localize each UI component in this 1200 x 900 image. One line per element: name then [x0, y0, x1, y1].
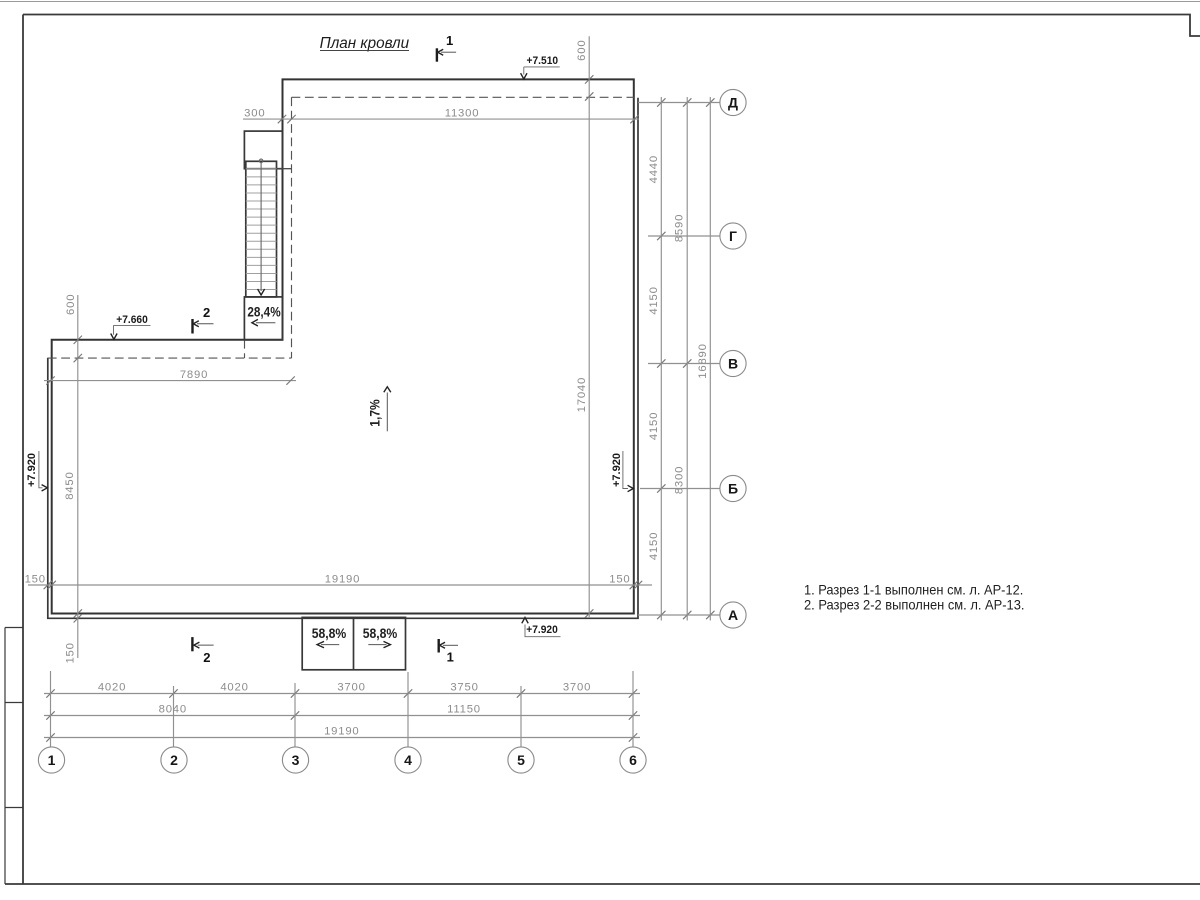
svg-text:Б: Б [728, 481, 738, 497]
svg-text:8300: 8300 [674, 466, 686, 494]
svg-text:8040: 8040 [159, 704, 187, 716]
svg-text:17040: 17040 [576, 377, 588, 412]
svg-text:План кровли: План кровли [320, 35, 410, 52]
svg-text:Д: Д [728, 95, 738, 111]
svg-text:+7.510: +7.510 [527, 55, 559, 67]
svg-text:4: 4 [404, 752, 412, 768]
svg-text:4150: 4150 [648, 286, 660, 314]
svg-text:+7.920: +7.920 [26, 453, 38, 487]
svg-text:3750: 3750 [450, 682, 478, 694]
svg-text:150: 150 [609, 574, 630, 586]
svg-text:2: 2 [203, 650, 210, 665]
svg-text:6: 6 [629, 752, 637, 768]
svg-text:4150: 4150 [648, 412, 660, 440]
svg-text:1: 1 [48, 752, 56, 768]
svg-text:11150: 11150 [447, 704, 481, 716]
svg-text:3700: 3700 [563, 682, 591, 694]
svg-text:3700: 3700 [337, 682, 365, 694]
svg-text:В: В [728, 356, 738, 372]
svg-text:+7.920: +7.920 [526, 624, 558, 636]
svg-text:19190: 19190 [325, 574, 360, 586]
svg-text:19190: 19190 [324, 726, 359, 738]
svg-text:1,7%: 1,7% [366, 399, 382, 427]
svg-text:300: 300 [244, 107, 265, 119]
svg-text:А: А [728, 607, 738, 623]
svg-text:150: 150 [65, 642, 77, 663]
svg-text:11300: 11300 [445, 107, 480, 119]
svg-text:8450: 8450 [64, 471, 76, 499]
svg-text:3: 3 [292, 752, 300, 768]
svg-text:+7.920: +7.920 [611, 453, 623, 487]
svg-text:2: 2 [203, 305, 210, 320]
svg-text:2: 2 [170, 752, 178, 768]
svg-text:600: 600 [576, 40, 588, 61]
svg-text:58,8%: 58,8% [363, 626, 398, 641]
svg-text:4150: 4150 [648, 532, 660, 560]
svg-text:7890: 7890 [180, 369, 208, 381]
svg-text:58,8%: 58,8% [312, 626, 347, 641]
svg-text:2. Разрез 2-2 выполнен см. л.: 2. Разрез 2-2 выполнен см. л. АР-13. [804, 597, 1025, 612]
svg-text:4440: 4440 [648, 155, 660, 183]
svg-text:16890: 16890 [697, 343, 709, 378]
svg-text:1. Разрез 1-1 выполнен см. л.: 1. Разрез 1-1 выполнен см. л. АР-12. [804, 583, 1023, 598]
svg-text:150: 150 [25, 574, 46, 586]
svg-text:Г: Г [729, 228, 737, 244]
svg-text:4020: 4020 [220, 682, 248, 694]
svg-text:1: 1 [447, 650, 454, 665]
svg-text:4020: 4020 [98, 682, 126, 694]
svg-text:5: 5 [517, 752, 525, 768]
svg-text:28,4%: 28,4% [247, 304, 280, 319]
svg-text:+7.660: +7.660 [116, 314, 148, 326]
svg-text:1: 1 [446, 33, 453, 48]
svg-text:8590: 8590 [674, 214, 686, 242]
svg-text:600: 600 [65, 294, 77, 315]
